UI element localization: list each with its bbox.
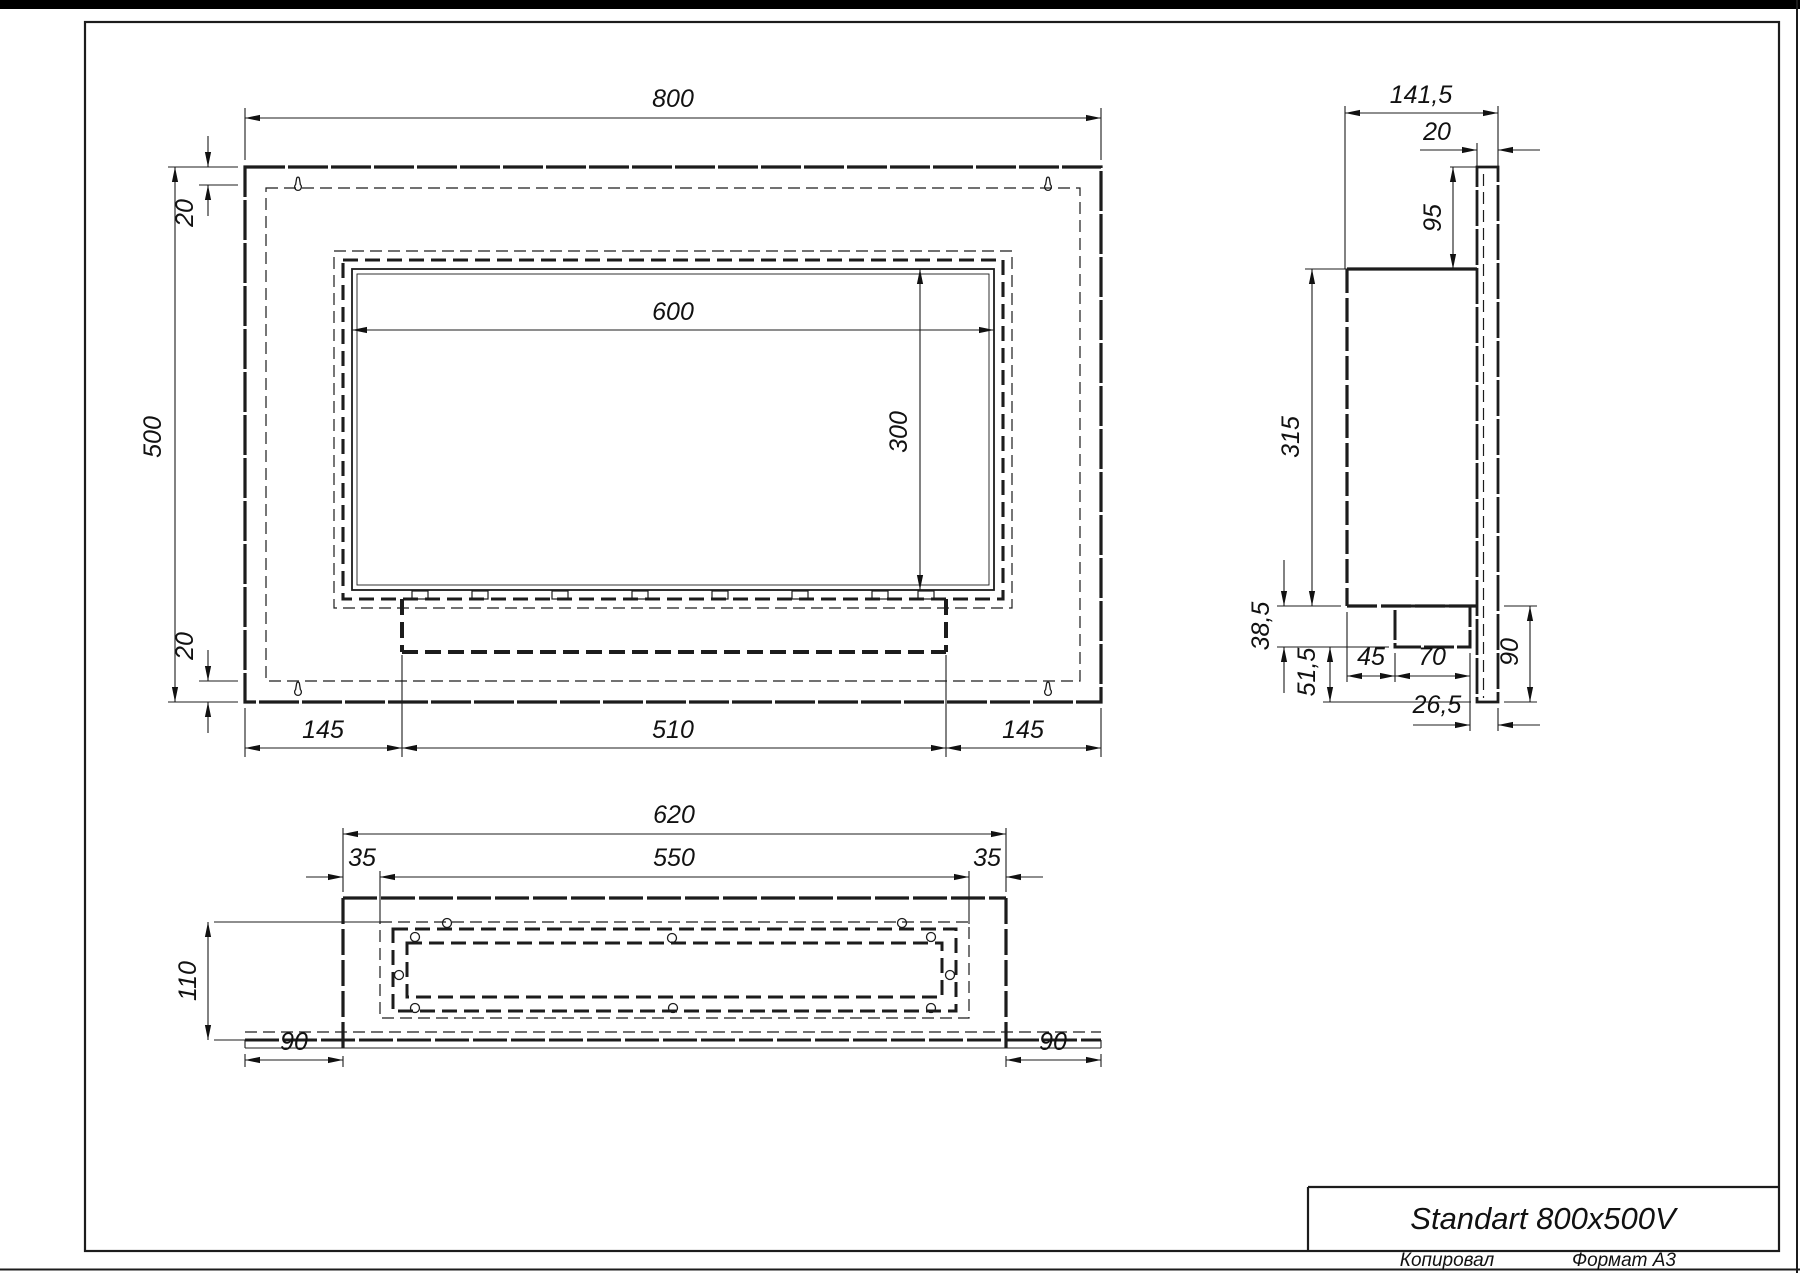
dim-opening-width: 600	[652, 298, 694, 326]
bottom-view-dimensions: 620 35 550 35 110 90 90	[174, 801, 1101, 1067]
dim-front-height: 500	[139, 416, 167, 458]
dim-tray-width: 510	[652, 716, 694, 744]
dim-depth: 141,5	[1390, 81, 1453, 109]
dim-box-height: 315	[1277, 416, 1305, 458]
dim-front-to-burner: 45	[1357, 643, 1385, 671]
side-view: 141,5 20 95 315 38,5 51,5	[1247, 81, 1540, 731]
bottom-view: 620 35 550 35 110 90 90	[174, 801, 1101, 1067]
title-block: Standart 800x500V	[1308, 1187, 1779, 1251]
dim-lower-height: 90	[1496, 638, 1524, 666]
front-view: 800 500 20 20 600 300	[139, 85, 1101, 757]
dim-slot-inset-right: 35	[973, 844, 1001, 872]
dim-back-gap: 26,5	[1412, 691, 1462, 719]
keyhole-hanger-icon	[295, 682, 302, 695]
front-view-dimensions: 800 500 20 20 600 300	[139, 85, 1101, 757]
dim-under-burner: 51,5	[1293, 648, 1321, 697]
top-edge-bar	[0, 0, 1800, 9]
dim-burner-width: 70	[1418, 643, 1446, 671]
dim-front-width: 800	[652, 85, 694, 113]
dim-margin-left: 145	[302, 716, 344, 744]
sheet-footer: Копировал Формат А3	[1400, 1250, 1677, 1271]
dim-box-width: 620	[653, 801, 695, 829]
dim-burner-depth: 38,5	[1247, 602, 1275, 651]
keyhole-hanger-icon	[1045, 682, 1052, 695]
technical-drawing: 800 500 20 20 600 300	[0, 0, 1800, 1273]
dim-opening-height: 300	[885, 411, 913, 453]
dim-front-bottom-offset: 20	[171, 632, 199, 661]
drawing-title: Standart 800x500V	[1410, 1201, 1679, 1236]
dim-top-to-opening: 95	[1419, 204, 1447, 232]
drawing-canvas: 800 500 20 20 600 300	[0, 0, 1800, 1273]
tray-hidden-outline	[402, 599, 946, 652]
dim-flange-right: 90	[1039, 1028, 1067, 1056]
dim-plate-thickness: 20	[1422, 118, 1451, 146]
footer-copied-label: Копировал	[1400, 1250, 1495, 1271]
dim-front-top-offset: 20	[171, 199, 199, 228]
dim-margin-right: 145	[1002, 716, 1044, 744]
dim-bottom-depth: 110	[174, 961, 202, 1001]
keyhole-hanger-icon	[295, 177, 302, 190]
dim-flange-left: 90	[280, 1028, 308, 1056]
dim-slot-inset-left: 35	[348, 844, 376, 872]
footer-format-label: Формат А3	[1572, 1250, 1676, 1271]
dim-slot-width: 550	[653, 844, 695, 872]
sheet-border	[85, 22, 1779, 1251]
